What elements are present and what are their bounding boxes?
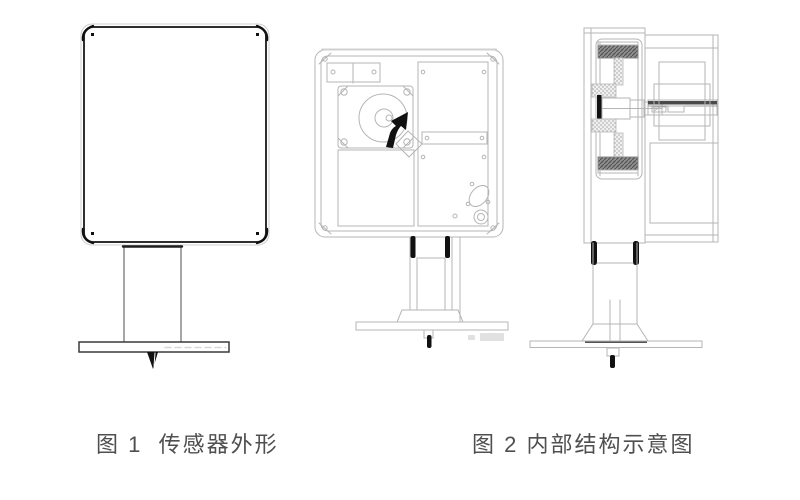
mounting-bolt bbox=[445, 236, 450, 258]
faint-watermark-marks bbox=[468, 333, 504, 341]
wheel-rim-section bbox=[598, 45, 638, 58]
sensor-element bbox=[465, 182, 493, 211]
document-page: 图 1 传感器外形 图 2 内部结构示意图 bbox=[0, 0, 800, 500]
sensor-front-view-drawing bbox=[79, 24, 269, 369]
wheel-spoke-section bbox=[614, 133, 623, 160]
figure2-caption: 图 2 内部结构示意图 bbox=[472, 432, 694, 458]
mounting-bolt bbox=[411, 236, 416, 258]
drive-shaft bbox=[648, 101, 717, 105]
wheel-hub-section bbox=[592, 119, 616, 132]
terminal-strip bbox=[422, 132, 487, 144]
connector-pin bbox=[610, 355, 615, 368]
circuit-board bbox=[338, 150, 414, 226]
mounting-base bbox=[356, 322, 508, 330]
sensor-internal-front-drawing bbox=[315, 50, 508, 349]
connector-pin bbox=[427, 335, 432, 348]
cable-gland bbox=[474, 210, 488, 224]
figure1-caption: 图 1 传感器外形 bbox=[96, 432, 279, 458]
lower-compartment bbox=[650, 143, 718, 223]
mounting-bolt bbox=[633, 241, 639, 265]
wheel-rim-section bbox=[598, 157, 638, 170]
mounting-bolt bbox=[591, 241, 597, 265]
sensor-internal-side-drawing bbox=[530, 28, 718, 368]
sensor-panel bbox=[84, 27, 266, 242]
shaft-key bbox=[597, 95, 602, 120]
figures-canvas bbox=[0, 0, 800, 420]
wheel-hub-section bbox=[592, 84, 616, 97]
connector-pin bbox=[147, 352, 158, 369]
wheel-spoke-section bbox=[614, 58, 623, 85]
